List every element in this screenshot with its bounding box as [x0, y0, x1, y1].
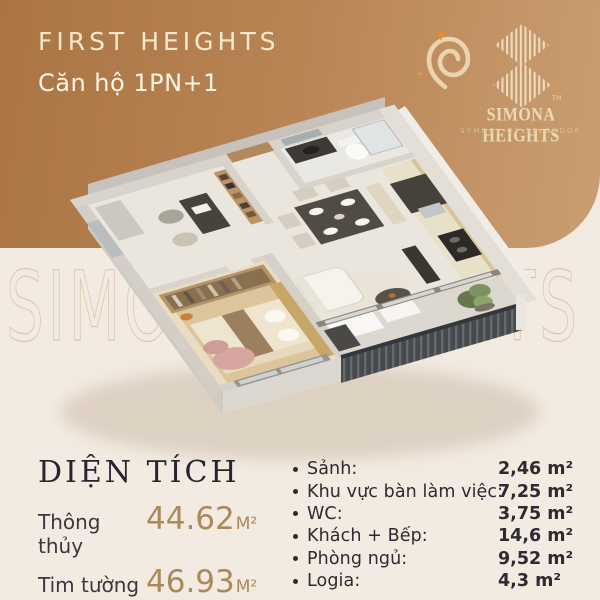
- room-label: Khách + Bếp:: [307, 526, 428, 546]
- net-area-unit: M²: [236, 514, 257, 534]
- bullet-icon: [293, 467, 298, 472]
- marketing-card: SIMONA HEIGHTS FIRST HEIGHTS Căn hộ 1PN+…: [0, 0, 600, 600]
- room-value: 14,6 m²: [498, 526, 573, 546]
- list-item: Khu vực bàn làm việc: 7,25 m²: [293, 480, 565, 502]
- bullet-icon: [293, 489, 298, 494]
- gross-area-value: 46.93: [146, 564, 235, 600]
- list-item: Sảnh: 2,46 m²: [293, 458, 565, 480]
- spiral-pin-icon: [416, 29, 468, 87]
- gross-area-unit: M²: [236, 577, 257, 597]
- bullet-icon: [293, 579, 298, 584]
- gross-area-label: Tim tường: [38, 573, 142, 597]
- summary-row-gross-area: Tim tường 46.93 M²: [38, 564, 257, 600]
- room-label: Khu vực bàn làm việc:: [307, 482, 503, 502]
- bullet-icon: [293, 511, 298, 516]
- room-label: WC:: [307, 504, 343, 524]
- brand-lockup: TM SIMONA HEIGHTS SYMBOL OF SPLENDOR: [0, 0, 600, 150]
- room-value: 9,52 m²: [498, 549, 573, 569]
- striped-double-diamond-icon: TM: [493, 24, 562, 108]
- railing-end-post: [516, 294, 526, 330]
- list-item: WC: 3,75 m²: [293, 503, 565, 525]
- area-summary-title: DIỆN TÍCH: [38, 455, 257, 490]
- bullet-icon: [293, 556, 298, 561]
- list-item: Khách + Bếp: 14,6 m²: [293, 525, 565, 547]
- area-summary: DIỆN TÍCH Thông thủy 44.62 M² Tim tường …: [38, 455, 257, 600]
- room-label: Phòng ngủ:: [307, 549, 407, 569]
- net-area-label: Thông thủy: [38, 510, 142, 558]
- room-label: Logia:: [307, 571, 360, 591]
- room-value: 7,25 m²: [498, 482, 573, 502]
- net-area-value: 44.62: [146, 501, 235, 537]
- list-item: Phòng ngủ: 9,52 m²: [293, 548, 565, 570]
- room-value: 2,46 m²: [498, 459, 573, 479]
- room-area-list: Sảnh: 2,46 m² Khu vực bàn làm việc: 7,25…: [293, 458, 565, 592]
- room-value: 4,3 m²: [498, 571, 561, 591]
- list-item: Logia: 4,3 m²: [293, 570, 565, 592]
- brand-tagline: SYMBOL OF SPLENDOR: [449, 127, 593, 135]
- room-value: 3,75 m²: [498, 504, 573, 524]
- bullet-icon: [293, 534, 298, 539]
- summary-row-net-area: Thông thủy 44.62 M²: [38, 501, 257, 558]
- sparkle-small-icon: [416, 70, 423, 77]
- trademark-symbol: TM: [551, 94, 562, 102]
- room-label: Sảnh:: [307, 459, 357, 479]
